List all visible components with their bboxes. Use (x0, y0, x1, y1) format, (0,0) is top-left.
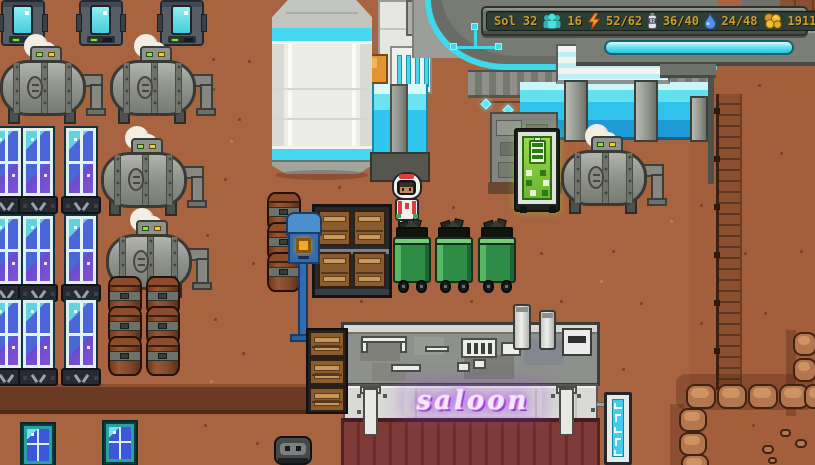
rock (679, 432, 707, 456)
panel-sparkle (87, 262, 90, 265)
bin-rim (435, 237, 473, 245)
panel-grid-v (119, 427, 121, 459)
solar-panel[interactable] (21, 214, 55, 286)
panel-sparkle (12, 346, 15, 349)
crate-midline (312, 346, 342, 348)
tank-band (626, 153, 633, 203)
wooden-crate[interactable] (353, 210, 386, 246)
character-eye (409, 188, 411, 191)
panel-base-bolt (66, 376, 70, 380)
silo-highlight (288, 44, 292, 146)
band-bolt (591, 408, 595, 412)
soil-speck (622, 368, 625, 371)
solar-panel[interactable] (21, 126, 55, 198)
soil-speck-light (230, 140, 233, 143)
machine-screen-sparkle (103, 11, 107, 15)
panel-base-strut (31, 374, 39, 383)
rock (780, 429, 791, 437)
panel-base (18, 368, 58, 386)
silo-shadow (276, 170, 368, 180)
panel-sparkle (31, 138, 34, 141)
saloon-chimney (513, 304, 531, 350)
atmos-machine[interactable] (160, 0, 204, 46)
tank-head-light-green (146, 52, 153, 57)
panel-grid-v (37, 429, 39, 461)
panel-grid-h (0, 161, 18, 164)
wing-pillar (690, 96, 708, 142)
awning-post (559, 388, 574, 436)
circuit-node (495, 43, 502, 50)
machine-flange-right (201, 14, 207, 32)
solar-panel[interactable] (0, 298, 23, 370)
solar-panel[interactable] (0, 126, 23, 198)
machine-led (12, 38, 20, 42)
tank-head-light-yellow (149, 144, 156, 149)
crate-slat (314, 393, 340, 399)
panel-base-strut (0, 374, 6, 383)
waterfall-glass (372, 84, 428, 158)
soil-speck (452, 206, 455, 209)
chimney-cap (516, 307, 528, 312)
saloon-building (341, 302, 600, 465)
tank-band (574, 153, 581, 203)
tank-body (110, 60, 196, 116)
soil-speck (700, 322, 703, 325)
machine-slot (184, 38, 193, 42)
tank-hatch-rung (142, 84, 149, 86)
kiosk-foot (520, 206, 527, 213)
fence-knob (714, 156, 720, 162)
solar-panel-small[interactable] (102, 420, 138, 465)
tank-hatch-rung (32, 90, 39, 92)
panel-base (61, 196, 101, 214)
bin-rim (393, 237, 431, 245)
rock-highlight (684, 436, 700, 445)
tank-hatch-rung (142, 90, 149, 92)
tank-band (123, 63, 130, 113)
panel-base-bolt (23, 204, 27, 208)
panel-sparkle (12, 174, 15, 177)
crate-slat (314, 365, 340, 371)
machine-led (90, 38, 98, 42)
band-bolt (357, 410, 361, 414)
rock-highlight (722, 388, 740, 398)
panel-grid-v (5, 303, 8, 365)
silo-seam (276, 118, 368, 120)
box-chimney (562, 328, 592, 356)
panel-grid-v (37, 219, 40, 281)
rock (804, 384, 815, 409)
soil-speck-light (210, 380, 213, 383)
water-drop-icon (704, 13, 716, 29)
roof-box (473, 359, 486, 369)
rock-highlight (753, 388, 771, 398)
panel-base-strut (82, 202, 90, 211)
saloon-neon-sign: saloon (404, 386, 542, 416)
solar-panel-small[interactable] (20, 422, 56, 465)
barrel-top-rim (269, 194, 299, 203)
oxygen-count: 36/40 (663, 14, 699, 28)
kiosk-glyph (530, 190, 536, 196)
suit-stripe (412, 201, 416, 214)
box-chimney-slot (568, 336, 586, 343)
energy-bolt-icon (587, 13, 601, 29)
panel-grid-v (80, 219, 83, 281)
solar-panel[interactable] (64, 126, 98, 198)
panel-base-bolt (51, 204, 55, 208)
rock (768, 457, 777, 464)
alien-glyph (614, 403, 622, 409)
barrel-top-rim (148, 278, 178, 287)
tank-hatch-rung (593, 180, 600, 182)
rock (717, 384, 747, 409)
crate-slat (358, 276, 381, 282)
suit-green-pad (396, 214, 401, 218)
rock-highlight (798, 362, 810, 371)
panel-sparkle (0, 138, 2, 141)
panel-base-bolt (66, 204, 70, 208)
silo-cap-line (286, 12, 358, 14)
mailbox-screen (296, 238, 311, 253)
crate-midline (321, 230, 348, 232)
soil-speck (242, 352, 245, 355)
rock-highlight (798, 336, 810, 345)
panel-base-strut (74, 374, 82, 383)
tank-head-light-green (137, 144, 144, 149)
hud-inner: Sol 32 16 52/62 O2 36/40 24/48 (486, 11, 815, 31)
tank-pipe-cap (647, 198, 667, 206)
charging-kiosk-sign[interactable] (514, 128, 560, 212)
tank-head-light-yellow (158, 52, 165, 57)
crate-midline (356, 272, 383, 274)
awning-post (363, 388, 378, 436)
robot-tread (278, 458, 308, 463)
silo-trim-top (272, 28, 372, 44)
panel-grid-h (0, 333, 18, 336)
crate-slat (323, 258, 346, 264)
robot-eye (285, 446, 290, 451)
tank-body (101, 152, 187, 208)
kiosk-glyph (543, 180, 549, 186)
bin-wheel-hub (420, 285, 423, 288)
wooden-crate[interactable] (318, 210, 351, 246)
soil-speck (238, 118, 241, 121)
rock-highlight (809, 388, 815, 398)
alien-glyph (615, 414, 621, 422)
panel-grid-h (0, 249, 18, 252)
battery-bar (532, 149, 543, 153)
rust-barrel[interactable] (146, 336, 180, 376)
roof-patch (464, 355, 514, 379)
compost-bin[interactable] (477, 225, 517, 293)
crate-slat (323, 276, 346, 282)
chimney-cap (542, 313, 553, 318)
wooden-crate[interactable] (353, 252, 386, 288)
tank-pipe-cap (196, 108, 216, 116)
tank-hatch-rung (32, 84, 39, 86)
roof-pipe (425, 346, 449, 352)
compost-bin[interactable] (434, 225, 474, 293)
panel-sparkle (87, 346, 90, 349)
rock (795, 439, 807, 448)
wing-pillar (634, 80, 658, 142)
bin-wheel-hub (444, 285, 447, 288)
storage-tank[interactable] (110, 46, 216, 130)
silo-cap (272, 0, 372, 30)
tank-hatch (588, 166, 604, 189)
soil-speck (758, 84, 761, 87)
bin-wheel-hub (402, 285, 405, 288)
kiosk-glyph (540, 170, 546, 176)
barrel-hatch (120, 353, 129, 359)
machine-flange-right (42, 14, 48, 32)
mailbox-slot (298, 256, 309, 259)
colonists-icon (542, 13, 562, 29)
tank-hatch (137, 76, 153, 99)
panel-grid-v (5, 131, 8, 193)
barrel-top-rim (110, 338, 140, 347)
robot-eye (296, 446, 301, 451)
storage-tank[interactable] (101, 138, 207, 222)
panel-grid-v (5, 219, 8, 281)
wooden-crate[interactable] (309, 331, 345, 357)
wooden-crate[interactable] (309, 387, 345, 412)
soil-speck-light (670, 220, 673, 223)
solar-panel[interactable] (21, 298, 55, 370)
solar-panel[interactable] (64, 298, 98, 370)
machine-flange-left (157, 14, 163, 32)
barrel-hatch (120, 293, 129, 299)
tank-hatch-rung (593, 174, 600, 176)
oxygen-tank-label: O2 (650, 19, 656, 25)
tank-band (114, 155, 121, 205)
crate-slat (323, 234, 346, 240)
credits-count: 1911g (788, 14, 815, 28)
soil-speck (752, 424, 755, 427)
soil-speck (256, 442, 259, 445)
band-bolt (551, 394, 555, 398)
roof-coping (344, 325, 597, 334)
tank-head-light-green (142, 226, 149, 231)
rock-highlight (686, 458, 702, 465)
soil-speck (764, 312, 767, 315)
mailbox-pole (298, 260, 308, 336)
shelf-bottom (315, 289, 389, 295)
barrel-top-rim (110, 308, 140, 317)
cliff-ledge (0, 384, 310, 414)
machine-flange-left (0, 14, 4, 32)
alien-glyph (614, 427, 622, 433)
kiosk-foot (549, 206, 556, 213)
tank-head-light-yellow (154, 226, 161, 231)
panel-sparkle (87, 174, 90, 177)
panel-base-strut (39, 202, 47, 211)
tank-band (175, 63, 182, 113)
tank-hatch (133, 250, 149, 273)
rust-barrel[interactable] (108, 336, 142, 376)
kiosk-glyph (542, 190, 548, 196)
fence-knob (714, 108, 720, 114)
panel-base (61, 368, 101, 386)
panel-sparkle (12, 262, 15, 265)
tank-hatch-rung (138, 258, 145, 260)
panel-base-strut (7, 374, 15, 383)
crate-slat (323, 216, 346, 222)
water-count: 24/48 (721, 14, 757, 28)
tank-head-light-green (36, 52, 43, 57)
barrel-hatch (120, 323, 129, 329)
machine-screen-sparkle (184, 11, 188, 15)
band-bolt (357, 394, 361, 398)
machine-screen (12, 5, 33, 35)
tank-hatch-rung (138, 264, 145, 266)
tank-band (13, 63, 20, 113)
panel-base-strut (74, 202, 82, 211)
character-eye (402, 188, 404, 191)
rock-highlight (691, 388, 709, 398)
silo-facet-right (360, 44, 372, 146)
rock (748, 384, 778, 409)
roof-grille (461, 338, 497, 358)
scanner-mailbox[interactable] (286, 212, 322, 346)
tank-pipe-cap (187, 200, 207, 208)
panel-base-bolt (94, 204, 98, 208)
panel-base-bolt (51, 292, 55, 296)
panel-base-bolt (94, 376, 98, 380)
soil-speck (800, 250, 803, 253)
soil-speck (214, 318, 217, 321)
crate-midline (312, 401, 342, 403)
machine-led (171, 38, 179, 42)
panel-sparkle (74, 226, 77, 229)
rock (681, 454, 709, 465)
panel-sparkle (44, 174, 47, 177)
battery-bar (532, 155, 543, 159)
crate-shine (372, 58, 377, 68)
tank-hatch-rung (133, 176, 140, 178)
tank-pipe-cap (86, 108, 106, 116)
silo-trim-bottom (272, 146, 372, 160)
compost-bin[interactable] (392, 225, 432, 293)
panel-base-strut (39, 374, 47, 383)
hud-bar: Sol 32 16 52/62 O2 36/40 24/48 (481, 6, 808, 36)
crate-midline (356, 230, 383, 232)
panel-base-bolt (23, 292, 27, 296)
panel-sparkle (74, 310, 77, 313)
soil-speck (700, 204, 703, 207)
vent-slat (415, 55, 420, 87)
storage-tank[interactable] (561, 136, 667, 220)
fence-knob (714, 204, 720, 210)
silo-highlight (352, 44, 356, 146)
panel-grid-v (37, 303, 40, 365)
tank-body (561, 150, 647, 206)
crate-slat (314, 337, 340, 343)
battery-tip (534, 137, 541, 141)
band-bolt (383, 394, 387, 398)
bin-wheel-hub (462, 285, 465, 288)
helmet-stripe (399, 174, 414, 179)
panel-base (18, 196, 58, 214)
tank-hatch-rung (133, 182, 140, 184)
circuit-line-h (456, 46, 498, 49)
bin-wheel-hub (487, 285, 490, 288)
rock (679, 408, 707, 432)
tank-band (65, 63, 72, 113)
soil-speck (744, 252, 747, 255)
rock (686, 384, 716, 409)
band-bolt (577, 394, 581, 398)
panel-sparkle (0, 310, 2, 313)
panel-sparkle (74, 138, 77, 141)
soil-speck (224, 178, 227, 181)
roof-pipe-drop (400, 341, 407, 353)
wooden-crate[interactable] (318, 252, 351, 288)
alien-glyph (615, 438, 621, 446)
wood-fence (716, 94, 742, 390)
energy-count: 52/62 (606, 14, 642, 28)
panel-base-bolt (23, 376, 27, 380)
rock (793, 358, 815, 382)
robot-face (280, 443, 306, 455)
solar-panel[interactable] (64, 214, 98, 286)
machine-flange-left (76, 14, 82, 32)
soil-speck (780, 152, 783, 155)
soil-speck (540, 252, 543, 255)
fence-knob (714, 348, 720, 354)
panel-grid-v (37, 131, 40, 193)
storage-tank[interactable] (0, 46, 106, 130)
crate-midline (312, 374, 342, 376)
panel-sparkle (31, 433, 34, 436)
ledge-step-block (660, 64, 716, 78)
circuit-line-v (474, 30, 477, 46)
rock-highlight (684, 412, 700, 421)
machine-screen (171, 5, 192, 35)
tank-head-light-yellow (609, 142, 616, 147)
panel-base-strut (82, 374, 90, 383)
cleaning-robot[interactable] (274, 436, 312, 465)
circuit-node (471, 23, 478, 30)
panel-base-bolt (66, 292, 70, 296)
tank-hatch (128, 168, 144, 191)
panel-sparkle (44, 346, 47, 349)
barrel-top-rim (110, 278, 140, 287)
panel-base-bolt (51, 376, 55, 380)
fence-knob (714, 300, 720, 306)
tank-pipe-cap (192, 282, 212, 290)
vent-slat (397, 55, 402, 87)
vertical-shop-sign[interactable] (604, 392, 632, 465)
sol-counter: Sol 32 (494, 14, 537, 28)
panel-base-strut (0, 202, 6, 211)
atmos-machine[interactable] (79, 0, 123, 46)
silo-facet-left (272, 44, 284, 146)
circuit-node (450, 43, 457, 50)
roof-pipe-drop (361, 341, 368, 353)
panel-base-strut (7, 202, 15, 211)
ledge-glow-strip (604, 40, 794, 55)
solar-panel[interactable] (0, 214, 23, 286)
wooden-crate[interactable] (309, 359, 345, 385)
tank-hatch (27, 76, 43, 99)
vent-slat (424, 55, 429, 87)
kiosk-glyph (526, 170, 532, 176)
panel-sparkle (0, 226, 2, 229)
soil-speck (338, 186, 341, 189)
suit-emblem (405, 203, 409, 209)
panel-sparkle (113, 431, 116, 434)
